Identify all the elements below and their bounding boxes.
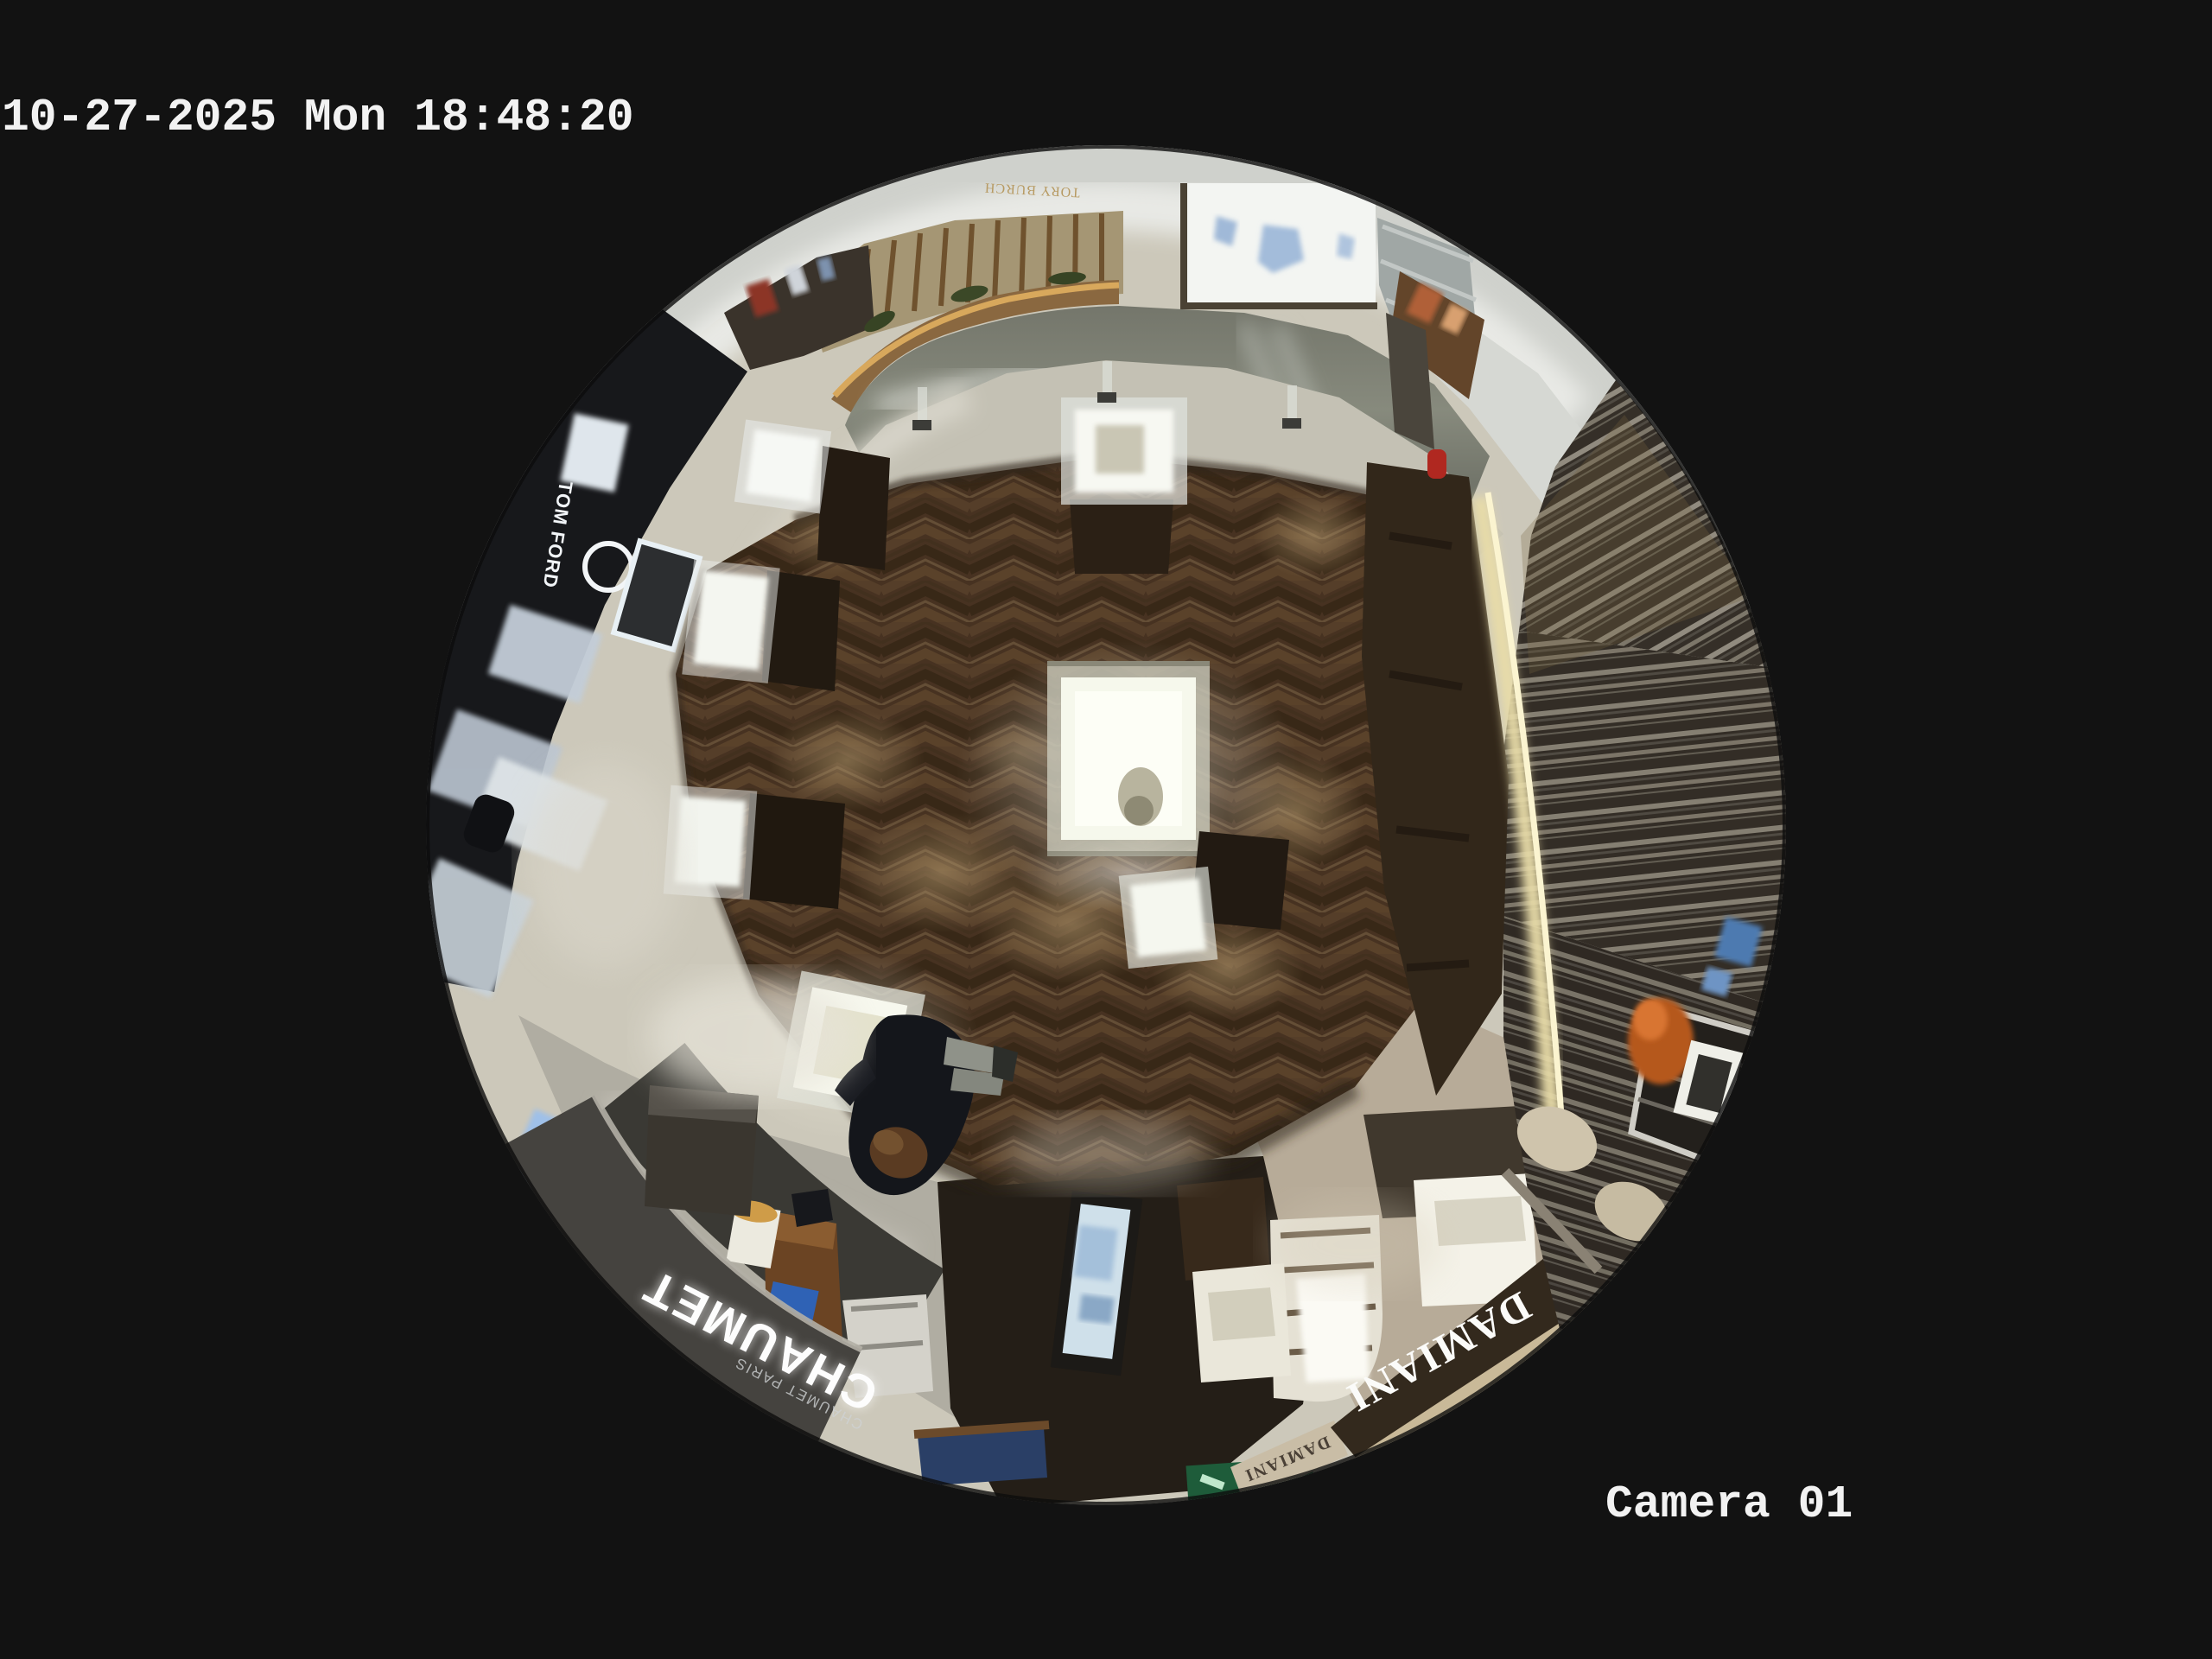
svg-text:Camera 01: Camera 01 [1605, 1478, 1853, 1530]
svg-text:10-27-2025 Mon 18:48:20: 10-27-2025 Mon 18:48:20 [2, 92, 634, 143]
